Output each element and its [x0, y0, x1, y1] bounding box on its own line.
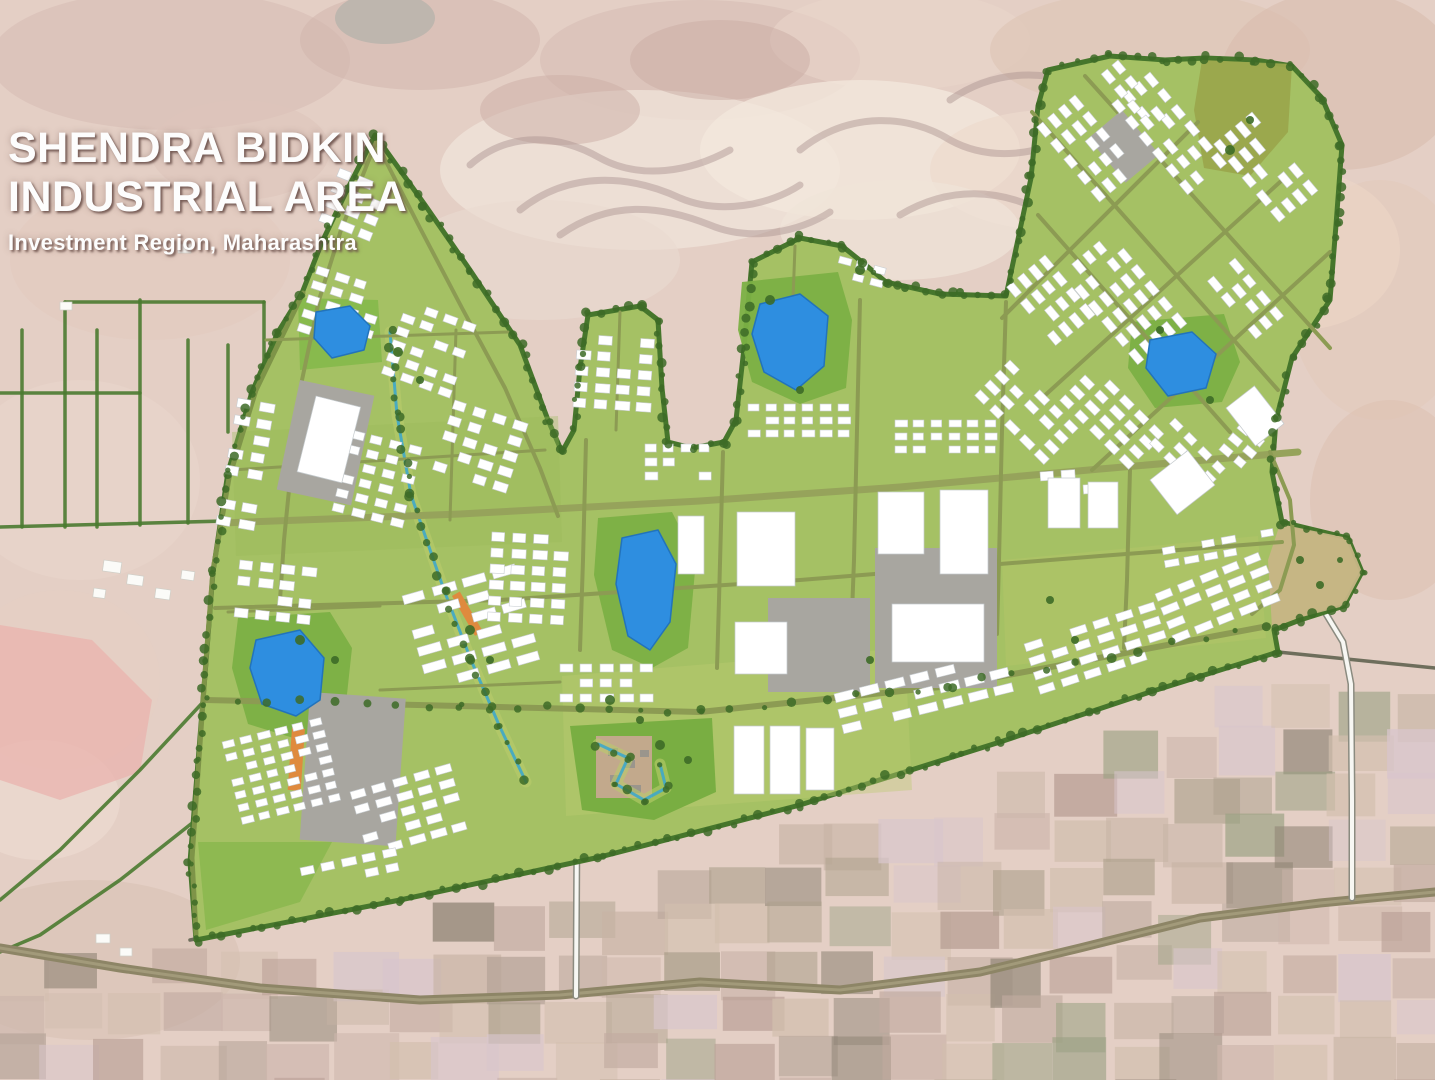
map-title-block: SHENDRA BIDKIN INDUSTRIAL AREA Investmen…	[8, 124, 407, 256]
master-plan-screenshot: SHENDRA BIDKIN INDUSTRIAL AREA Investmen…	[0, 0, 1435, 1080]
map-subtitle: Investment Region, Maharashtra	[8, 230, 407, 256]
map-title-line2: INDUSTRIAL AREA	[8, 173, 407, 222]
map-title-line1: SHENDRA BIDKIN	[8, 124, 407, 173]
